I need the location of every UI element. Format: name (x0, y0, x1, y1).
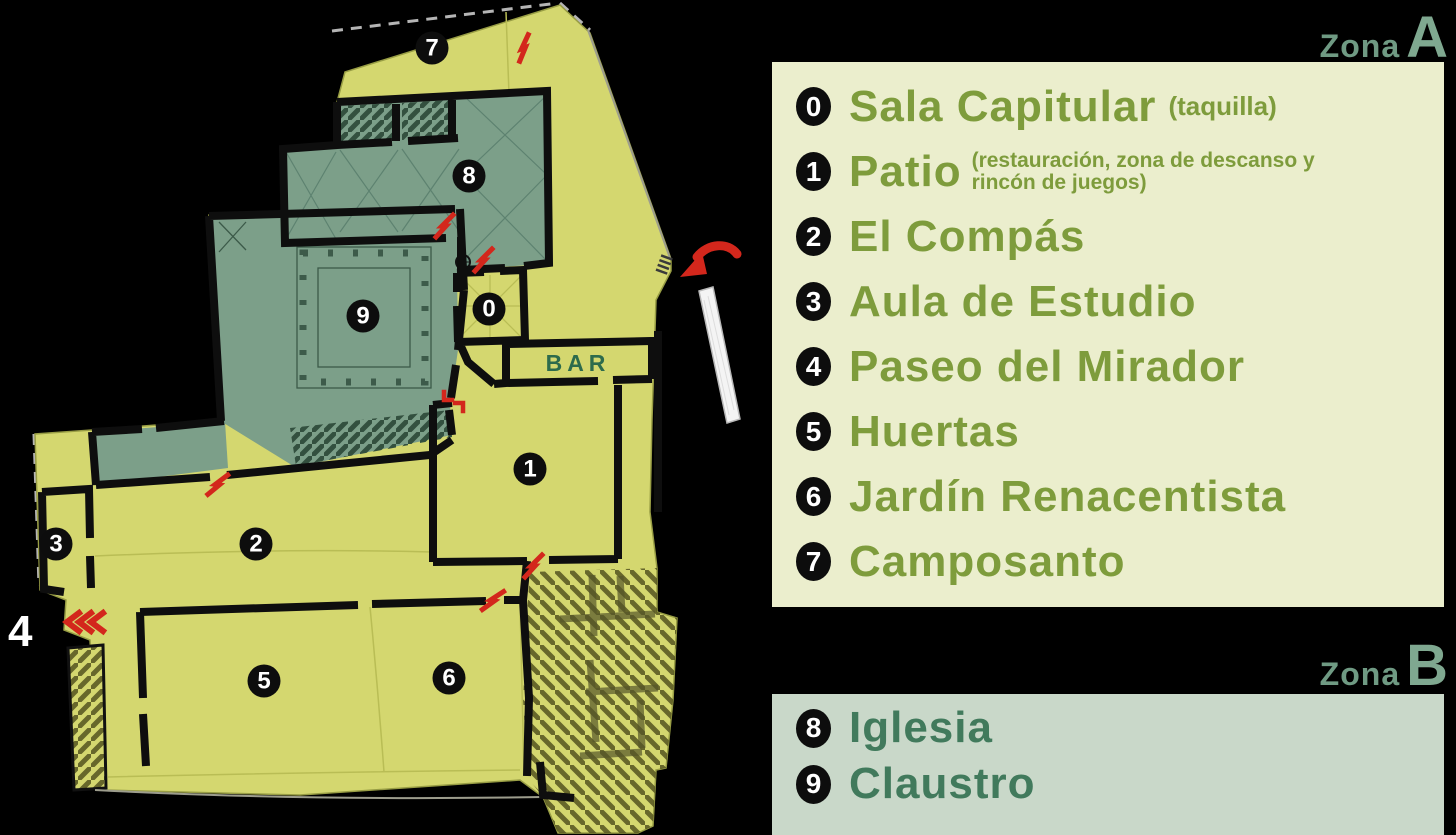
map-badge-6: 6 (433, 662, 466, 695)
entrance-arrow (680, 246, 737, 277)
item-number-badge: 5 (796, 412, 831, 451)
map-badge-2: 2 (240, 528, 273, 561)
item-label: Jardín Renacentista (849, 472, 1286, 522)
hatch-west-strip (68, 645, 106, 790)
legend-item-aula-de-estudio: 3 Aula de Estudio (796, 269, 1444, 334)
legend-item-sala-capitular: 0 Sala Capitular (taquilla) (796, 74, 1444, 139)
map-badge-7: 7 (416, 32, 449, 65)
map-badge-1: 1 (514, 453, 547, 486)
svg-text:3: 3 (49, 531, 62, 558)
legend-item-jardin-renacentista: 6 Jardín Renacentista (796, 464, 1444, 529)
legend-item-camposanto: 7 Camposanto (796, 529, 1444, 594)
svg-text:1: 1 (523, 456, 536, 483)
zone-a-letter: A (1406, 5, 1448, 70)
item-label: Huertas (849, 407, 1020, 457)
entrance-ramp (699, 287, 740, 423)
legend-item-patio: 1 Patio (restauración, zona de descanso … (796, 139, 1444, 204)
item-note: (taquilla) (1168, 91, 1276, 122)
item-note: (restauración, zona de descanso y rincón… (972, 150, 1324, 194)
item-label: Patio (849, 147, 962, 197)
zone-b-letter: B (1406, 633, 1448, 698)
item-label: Aula de Estudio (849, 277, 1196, 327)
item-label: Camposanto (849, 537, 1125, 587)
legend-item-huertas: 5 Huertas (796, 399, 1444, 464)
map-badge-5: 5 (248, 665, 281, 698)
item-label: Sala Capitular (849, 82, 1156, 132)
zone-a-word: Zona (1320, 28, 1400, 64)
svg-text:2: 2 (249, 531, 262, 558)
map-badge-0: 0 (473, 293, 506, 326)
item-label: Iglesia (849, 703, 993, 753)
item-label: Paseo del Mirador (849, 342, 1245, 392)
map-badge-3: 3 (40, 528, 73, 561)
bar-label: BAR (546, 350, 611, 376)
exterior-number-4: 4 (8, 607, 33, 656)
monastery-map-page: 0 1 2 3 5 6 7 8 (0, 0, 1456, 835)
item-number-badge: 6 (796, 477, 831, 516)
svg-text:0: 0 (482, 296, 495, 323)
legend-item-claustro: 9 Claustro (796, 756, 1444, 812)
item-number-badge: 0 (796, 87, 831, 126)
zone-a-panel: 0 Sala Capitular (taquilla) 1 Patio (res… (772, 62, 1444, 607)
map-badge-8: 8 (453, 160, 486, 193)
svg-text:7: 7 (425, 35, 438, 62)
item-number-badge: 1 (796, 152, 831, 191)
zone-b-heading: ZonaB (1320, 632, 1448, 699)
item-number-badge: 2 (796, 217, 831, 256)
item-label: Claustro (849, 759, 1035, 809)
item-number-badge: 8 (796, 709, 831, 748)
svg-text:8: 8 (462, 163, 475, 190)
legend-item-iglesia: 8 Iglesia (796, 700, 1444, 756)
svg-text:9: 9 (356, 303, 369, 330)
svg-text:6: 6 (442, 665, 455, 692)
legend-item-paseo-del-mirador: 4 Paseo del Mirador (796, 334, 1444, 399)
item-number-badge: 4 (796, 347, 831, 386)
map-badge-9: 9 (347, 300, 380, 333)
item-number-badge: 9 (796, 765, 831, 804)
zone-b-panel: 8 Iglesia 9 Claustro (772, 694, 1444, 835)
item-number-badge: 3 (796, 282, 831, 321)
site-floor-plan: 0 1 2 3 5 6 7 8 (0, 0, 745, 835)
item-label: El Compás (849, 212, 1085, 262)
zone-b-word: Zona (1320, 656, 1400, 692)
legend-item-el-compas: 2 El Compás (796, 204, 1444, 269)
zone-a-heading: ZonaA (1320, 4, 1448, 71)
item-number-badge: 7 (796, 542, 831, 581)
svg-text:5: 5 (257, 668, 270, 695)
